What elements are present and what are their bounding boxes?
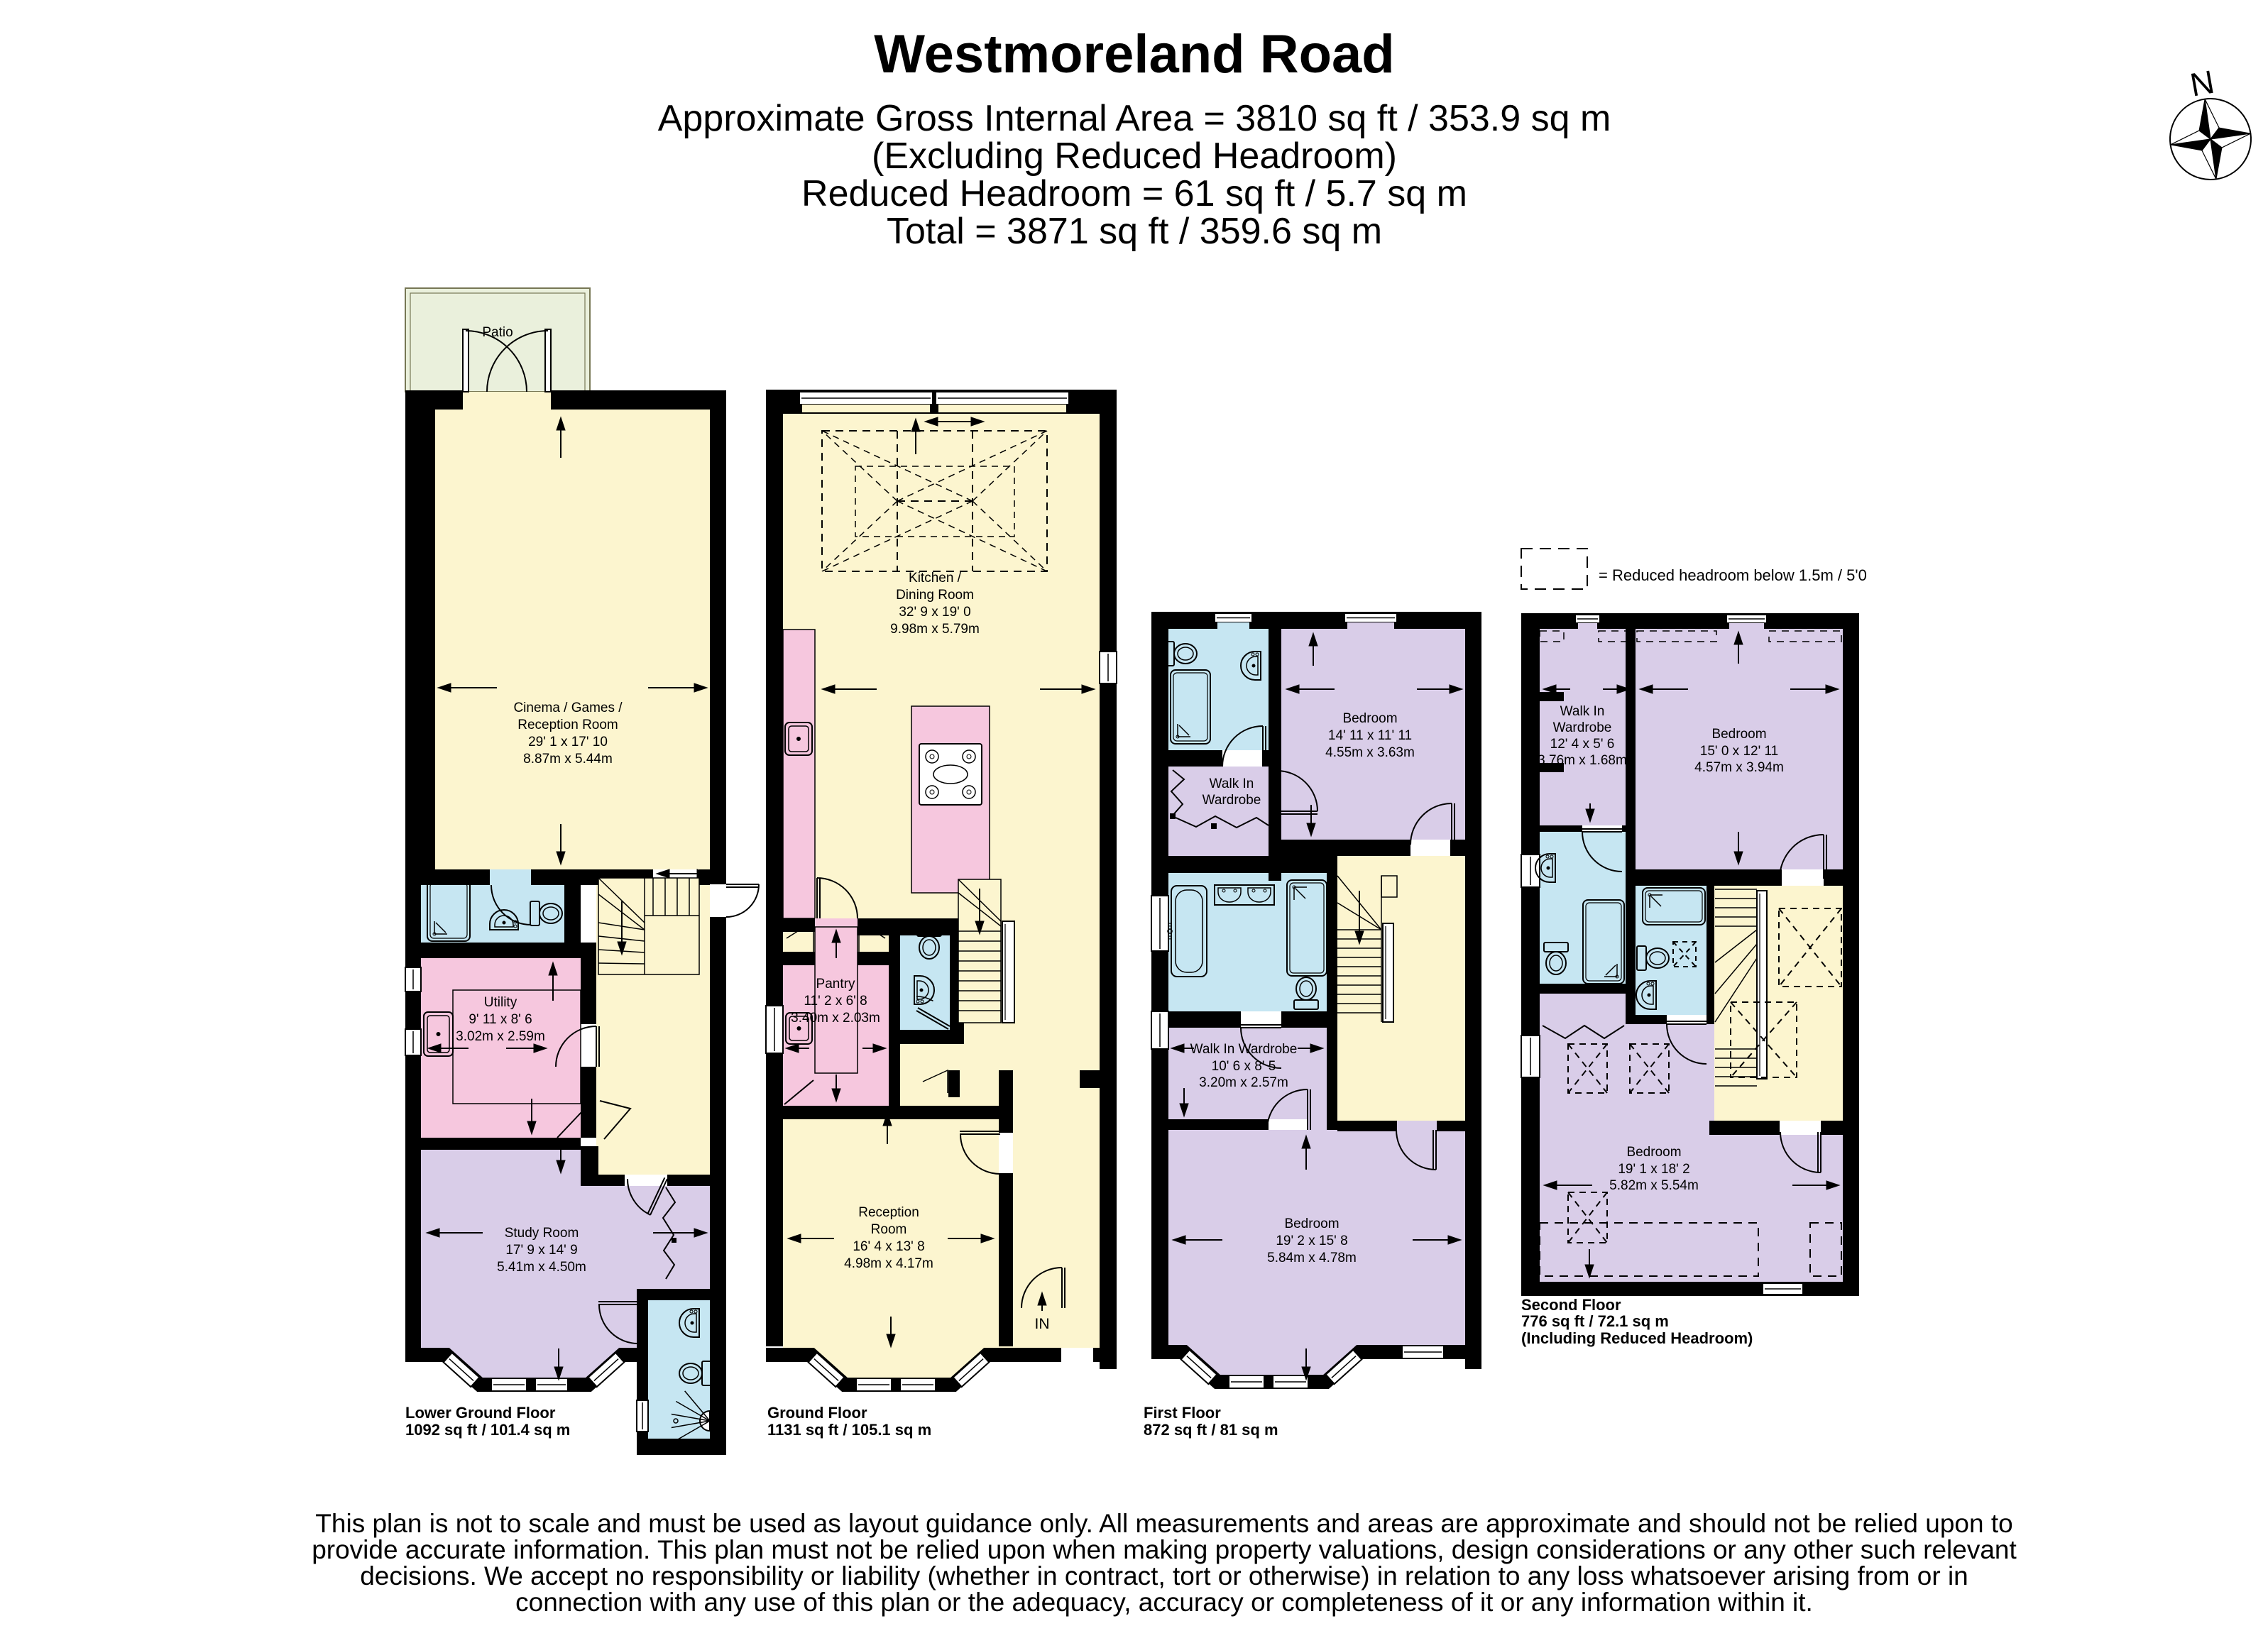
svg-text:1092 sq ft / 101.4 sq m: 1092 sq ft / 101.4 sq m xyxy=(405,1421,570,1439)
svg-text:872 sq ft / 81 sq m: 872 sq ft / 81 sq m xyxy=(1144,1421,1278,1439)
svg-text:29' 1 x 17' 10: 29' 1 x 17' 10 xyxy=(528,735,608,749)
svg-text:Reduced Headroom = 61 sq ft /: Reduced Headroom = 61 sq ft / 5.7 sq m xyxy=(801,173,1467,214)
svg-text:Bedroom: Bedroom xyxy=(1626,1145,1681,1160)
svg-text:Lower Ground Floor: Lower Ground Floor xyxy=(405,1404,556,1422)
svg-text:Wardrobe: Wardrobe xyxy=(1203,793,1261,808)
svg-text:776 sq ft / 72.1 sq m: 776 sq ft / 72.1 sq m xyxy=(1521,1312,1669,1330)
svg-text:Walk In: Walk In xyxy=(1560,704,1605,719)
svg-text:Wardrobe: Wardrobe xyxy=(1553,720,1612,735)
svg-text:Patio: Patio xyxy=(482,325,513,340)
svg-text:Reception: Reception xyxy=(858,1205,919,1220)
svg-text:Total = 3871 sq ft / 359.6 sq: Total = 3871 sq ft / 359.6 sq m xyxy=(887,211,1382,252)
svg-text:Second Floor: Second Floor xyxy=(1521,1296,1621,1314)
svg-text:decisions. We accept no respon: decisions. We accept no responsibility o… xyxy=(360,1561,1968,1591)
svg-text:4.98m x 4.17m: 4.98m x 4.17m xyxy=(844,1256,933,1271)
svg-text:11' 2 x 6' 8: 11' 2 x 6' 8 xyxy=(804,994,867,1009)
svg-text:IN: IN xyxy=(1035,1316,1050,1332)
svg-text:Dining Room: Dining Room xyxy=(896,588,974,603)
svg-text:3.76m x 1.68m: 3.76m x 1.68m xyxy=(1538,753,1627,768)
svg-text:(Excluding Reduced Headroom): (Excluding Reduced Headroom) xyxy=(872,136,1397,177)
svg-text:3.20m x 2.57m: 3.20m x 2.57m xyxy=(1199,1075,1288,1090)
svg-text:Westmoreland Road: Westmoreland Road xyxy=(874,24,1394,84)
svg-text:9.98m x 5.79m: 9.98m x 5.79m xyxy=(890,622,980,637)
svg-text:This plan is not to scale and: This plan is not to scale and must be us… xyxy=(315,1509,2012,1538)
svg-text:10' 6 x 8' 5: 10' 6 x 8' 5 xyxy=(1212,1059,1276,1074)
svg-text:32' 9 x 19' 0: 32' 9 x 19' 0 xyxy=(899,605,970,620)
svg-text:Bedroom: Bedroom xyxy=(1711,727,1766,742)
svg-text:Room: Room xyxy=(871,1222,907,1237)
svg-text:Kitchen /: Kitchen / xyxy=(909,571,962,586)
svg-text:12' 4 x 5' 6: 12' 4 x 5' 6 xyxy=(1550,737,1615,752)
svg-text:17' 9 x 14' 9: 17' 9 x 14' 9 xyxy=(505,1243,577,1258)
svg-text:Cinema / Games /: Cinema / Games / xyxy=(513,701,623,715)
svg-text:14' 11 x 11' 11: 14' 11 x 11' 11 xyxy=(1328,728,1412,743)
svg-text:Pantry: Pantry xyxy=(816,977,855,991)
svg-text:Utility: Utility xyxy=(484,995,517,1010)
svg-text:3.40m x 2.03m: 3.40m x 2.03m xyxy=(791,1011,880,1026)
svg-text:4.57m x 3.94m: 4.57m x 3.94m xyxy=(1694,760,1784,775)
svg-text:Study Room: Study Room xyxy=(505,1226,579,1241)
svg-text:19' 2 x 15' 8: 19' 2 x 15' 8 xyxy=(1276,1234,1347,1248)
svg-text:connection with any use of thi: connection with any use of this plan or … xyxy=(515,1588,1813,1617)
svg-text:Bedroom: Bedroom xyxy=(1342,711,1397,726)
svg-text:= Reduced headroom below 1.5m: = Reduced headroom below 1.5m / 5'0 xyxy=(1599,566,1867,584)
svg-text:5.41m x 4.50m: 5.41m x 4.50m xyxy=(497,1260,586,1275)
svg-text:5.82m x 5.54m: 5.82m x 5.54m xyxy=(1609,1178,1699,1193)
svg-text:provide accurate information.: provide accurate information. This plan … xyxy=(312,1535,2017,1564)
svg-text:Approximate Gross Internal Are: Approximate Gross Internal Area = 3810 s… xyxy=(658,98,1611,139)
svg-text:9' 11 x 8' 6: 9' 11 x 8' 6 xyxy=(469,1012,532,1027)
svg-text:(Including Reduced Headroom): (Including Reduced Headroom) xyxy=(1521,1329,1753,1347)
svg-text:19' 1 x 18' 2: 19' 1 x 18' 2 xyxy=(1618,1162,1689,1177)
svg-text:Walk In Wardrobe: Walk In Wardrobe xyxy=(1190,1042,1298,1057)
svg-text:Ground Floor: Ground Floor xyxy=(767,1404,867,1422)
svg-text:15' 0 x 12' 11: 15' 0 x 12' 11 xyxy=(1700,744,1778,759)
svg-text:First Floor: First Floor xyxy=(1144,1404,1221,1422)
svg-text:16' 4 x 13' 8: 16' 4 x 13' 8 xyxy=(853,1239,924,1254)
svg-text:Walk In: Walk In xyxy=(1210,776,1254,791)
svg-text:5.84m x 4.78m: 5.84m x 4.78m xyxy=(1267,1251,1357,1265)
svg-text:Reception Room: Reception Room xyxy=(517,718,618,732)
svg-text:3.02m x 2.59m: 3.02m x 2.59m xyxy=(456,1029,545,1044)
svg-text:1131 sq ft / 105.1 sq m: 1131 sq ft / 105.1 sq m xyxy=(767,1421,931,1439)
svg-text:8.87m x 5.44m: 8.87m x 5.44m xyxy=(523,752,613,767)
svg-text:4.55m x 3.63m: 4.55m x 3.63m xyxy=(1325,745,1415,760)
svg-text:Bedroom: Bedroom xyxy=(1284,1216,1339,1231)
